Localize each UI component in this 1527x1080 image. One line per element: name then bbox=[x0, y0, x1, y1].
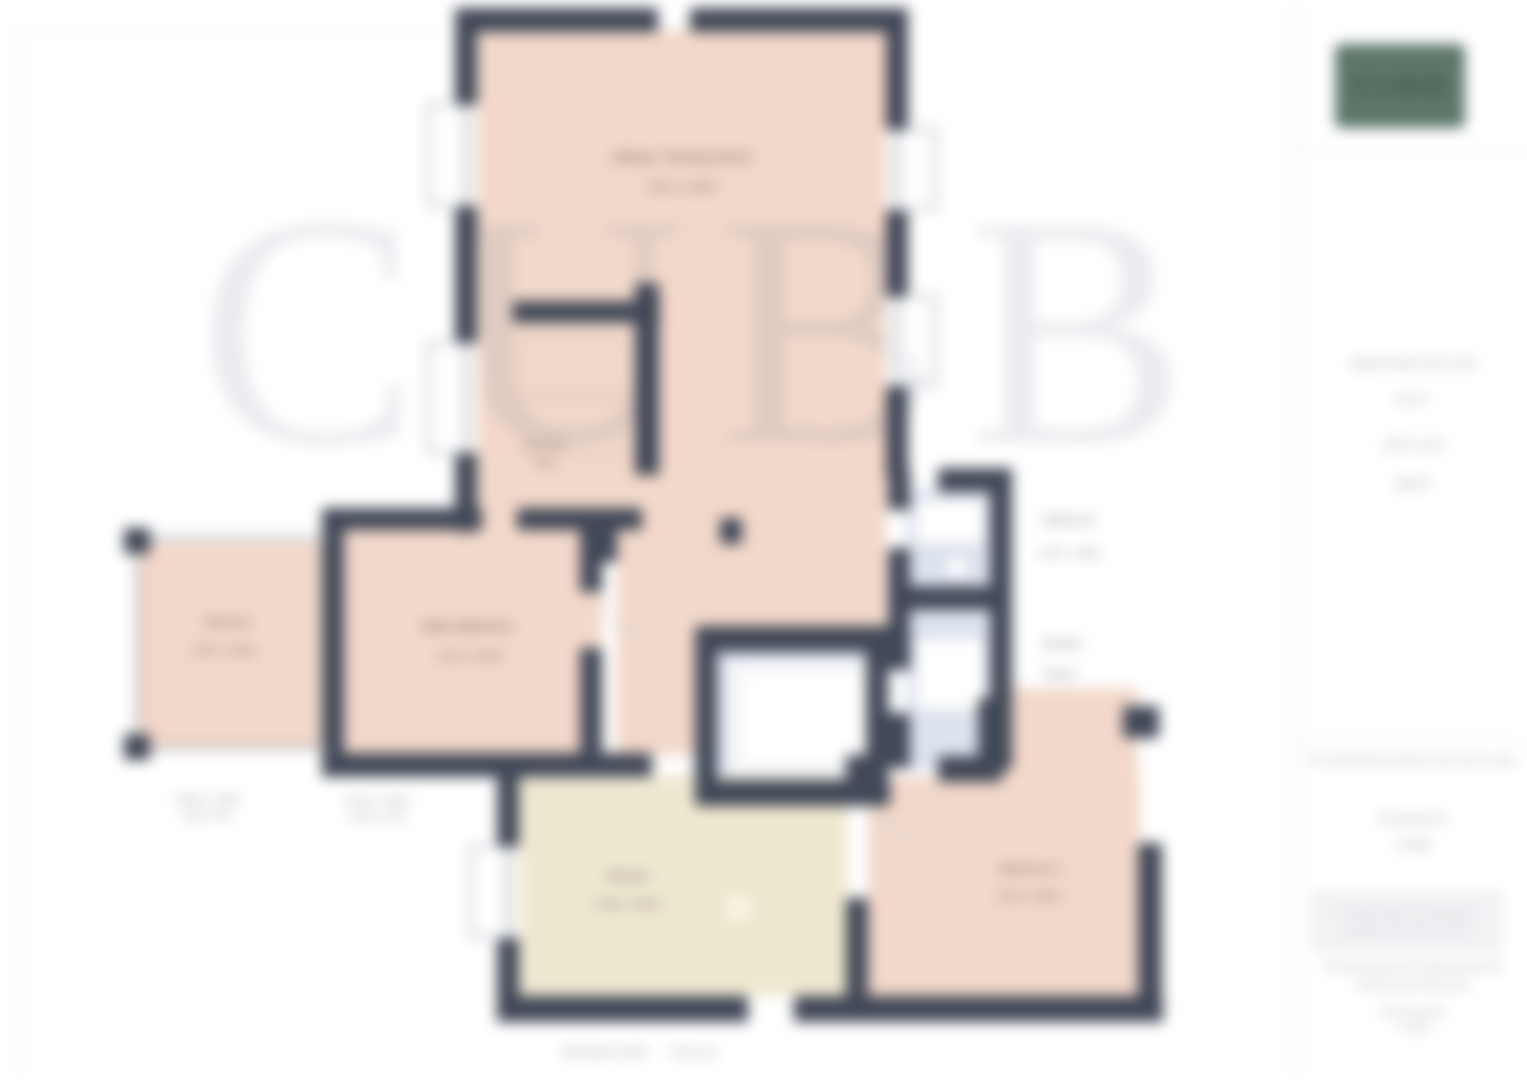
wall-segment bbox=[695, 626, 908, 652]
wall-segment bbox=[886, 210, 908, 297]
wall-segment bbox=[886, 386, 908, 478]
window bbox=[455, 105, 477, 206]
produced-value: CUBB bbox=[1297, 838, 1527, 852]
room-label-balcony: Balcony bbox=[206, 615, 250, 629]
room-label-bedroom2: Bedroom 2 bbox=[1000, 862, 1061, 876]
window-frame-line bbox=[934, 128, 937, 210]
room-fill-kitchen bbox=[519, 775, 848, 997]
plan-caption-area: 93.0 sq m bbox=[672, 1046, 718, 1058]
wall-segment bbox=[938, 756, 1002, 782]
footer-line: should not be relied upon bbox=[1297, 980, 1527, 991]
sidebar: CUBB Approximate Floor Area 93 m² (1001 … bbox=[1295, 0, 1527, 1080]
wall-segment bbox=[635, 283, 659, 475]
divider bbox=[1297, 150, 1527, 151]
window-frame-line bbox=[469, 845, 472, 938]
window bbox=[455, 343, 477, 453]
window-frame-line bbox=[910, 383, 936, 386]
dimension-label: 4.29m x 3.40m bbox=[344, 796, 410, 807]
area-approx: approx bbox=[1297, 476, 1527, 490]
wall-segment bbox=[322, 508, 344, 777]
info-box-line: purposes only. Not to scale. bbox=[1346, 925, 1469, 936]
door-arc-icon bbox=[602, 592, 650, 640]
window-frame-line bbox=[469, 845, 495, 848]
wall-segment bbox=[1123, 706, 1159, 738]
balcony-rail bbox=[150, 536, 328, 539]
disclaimer-note: For identification purposes only. Not to… bbox=[1297, 754, 1527, 766]
wall-segment bbox=[517, 508, 642, 530]
room-dims-bedroom1: 4.29 x 3.40m bbox=[437, 650, 503, 662]
info-box: This floor plan is for illustrative purp… bbox=[1311, 890, 1503, 954]
floorplan-page: CUBB bbox=[0, 0, 1527, 1080]
balcony-post bbox=[124, 528, 150, 554]
wall-segment bbox=[695, 650, 717, 782]
divider bbox=[1297, 740, 1527, 741]
window-frame-line bbox=[427, 451, 453, 454]
wardrobe-icon bbox=[520, 336, 626, 396]
wall-segment bbox=[322, 508, 482, 530]
footer-line: Plan produced bbox=[1297, 1006, 1527, 1017]
wall-segment bbox=[886, 8, 908, 130]
room-dims-kitchen: 3.68 x 2.95m bbox=[595, 898, 661, 910]
room-label-living: Sitting / Dining Room bbox=[612, 148, 753, 165]
table-icon bbox=[716, 886, 760, 930]
wall-segment bbox=[690, 8, 908, 32]
wall-segment bbox=[720, 518, 742, 544]
footer-copyright: © 2024 bbox=[1297, 1022, 1527, 1033]
room-dims-bathroom: 2.46 x 1.60m bbox=[1037, 547, 1101, 559]
door-gap bbox=[748, 996, 794, 1022]
watermark: CUBB bbox=[198, 166, 1217, 496]
wall-segment bbox=[455, 8, 477, 105]
balcony-rail bbox=[150, 746, 328, 749]
window-frame-line bbox=[910, 128, 936, 131]
room-label-bedroom1: Main Bedroom bbox=[422, 618, 513, 634]
wall-segment bbox=[888, 608, 910, 670]
window-frame-line bbox=[469, 935, 495, 938]
dimension-label: (13'0 x 6'1) bbox=[183, 810, 232, 821]
toilet-icon bbox=[944, 554, 970, 580]
area-value-ft: (1001 sq ft) bbox=[1297, 438, 1527, 452]
room-label-kitchen: Kitchen bbox=[606, 868, 649, 883]
page-edge-left bbox=[18, 30, 20, 1075]
window bbox=[886, 297, 908, 386]
wall-segment bbox=[888, 586, 996, 610]
room-dims-bedroom2: 3.50 x 2.84m bbox=[997, 890, 1061, 902]
produced-label: Produced for bbox=[1297, 812, 1527, 826]
area-title: Approximate Floor Area bbox=[1297, 356, 1527, 370]
wall-segment bbox=[866, 650, 888, 782]
window-frame-line bbox=[427, 103, 430, 207]
balcony-post bbox=[124, 734, 150, 760]
room-fill-bedroom1 bbox=[344, 530, 602, 755]
wall-segment bbox=[455, 8, 658, 32]
wall-segment bbox=[888, 713, 910, 768]
wall-segment bbox=[455, 206, 477, 343]
agency-logo: CUBB bbox=[1335, 44, 1465, 128]
wall-segment bbox=[497, 753, 519, 847]
window-frame-line bbox=[910, 207, 936, 210]
page-edge-top bbox=[18, 30, 438, 32]
dimension-label: 3.96m x 1.86m bbox=[174, 794, 240, 805]
window-frame-line bbox=[934, 295, 937, 386]
area-value: 93 m² bbox=[1297, 393, 1527, 407]
footer-line: All measurements are approximate and bbox=[1297, 962, 1527, 973]
plan-caption-floor: GROUND FLOOR bbox=[561, 1046, 647, 1058]
window-frame-line bbox=[427, 341, 430, 454]
info-box-line: This floor plan is for illustrative bbox=[1340, 908, 1475, 919]
window-frame-line bbox=[427, 341, 453, 344]
wall-segment bbox=[322, 753, 652, 777]
wall-segment bbox=[695, 780, 890, 806]
room-dims-dressing: Area bbox=[534, 456, 556, 468]
room-label-shower: Shower bbox=[1042, 637, 1083, 651]
wall-segment bbox=[888, 548, 910, 588]
wall-segment bbox=[888, 468, 910, 510]
window-frame-line bbox=[910, 295, 936, 298]
room-label-bathroom: Bathroom bbox=[1043, 513, 1095, 527]
room-dims-balcony: 3.96 x 1.86m bbox=[192, 644, 256, 656]
window bbox=[886, 130, 908, 210]
wall-segment bbox=[497, 996, 1163, 1022]
agency-logo-text: CUBB bbox=[1353, 69, 1448, 103]
room-dims-shower: Room bbox=[1044, 667, 1076, 681]
dimension-label: (14'1 x 11'2) bbox=[350, 812, 404, 823]
balcony-rail bbox=[136, 552, 139, 736]
wall-segment bbox=[580, 648, 602, 755]
room-label-dressing: Dressing bbox=[524, 438, 565, 450]
wall-segment bbox=[846, 898, 868, 1018]
wall-segment bbox=[580, 530, 602, 592]
shower-tray-icon bbox=[914, 636, 986, 712]
window-frame-line bbox=[427, 204, 453, 207]
window-frame-line bbox=[427, 103, 453, 106]
basin-icon bbox=[914, 498, 986, 546]
wall-segment bbox=[1138, 843, 1162, 1018]
window bbox=[497, 847, 519, 938]
room-dims-living: 4.62 x 4.29m bbox=[647, 180, 716, 194]
